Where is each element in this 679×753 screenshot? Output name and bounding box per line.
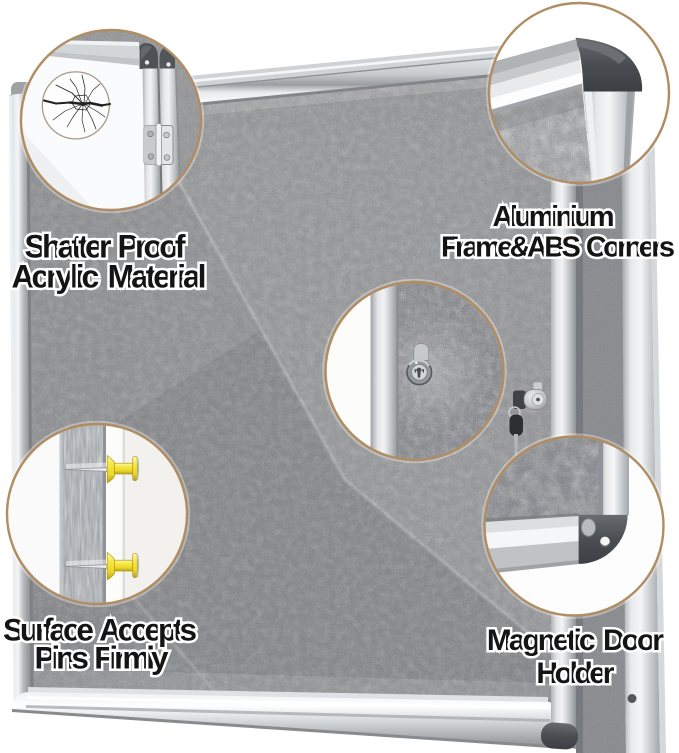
svg-text:Pins Firmly: Pins Firmly (35, 640, 169, 676)
svg-text:Frame&ABS Corners: Frame&ABS Corners (441, 232, 675, 264)
svg-text:Holder: Holder (536, 657, 614, 690)
svg-text:Magnetic Door: Magnetic Door (487, 624, 664, 657)
svg-text:Acrylic Material: Acrylic Material (12, 259, 207, 295)
svg-text:Aluminium: Aluminium (493, 201, 615, 233)
